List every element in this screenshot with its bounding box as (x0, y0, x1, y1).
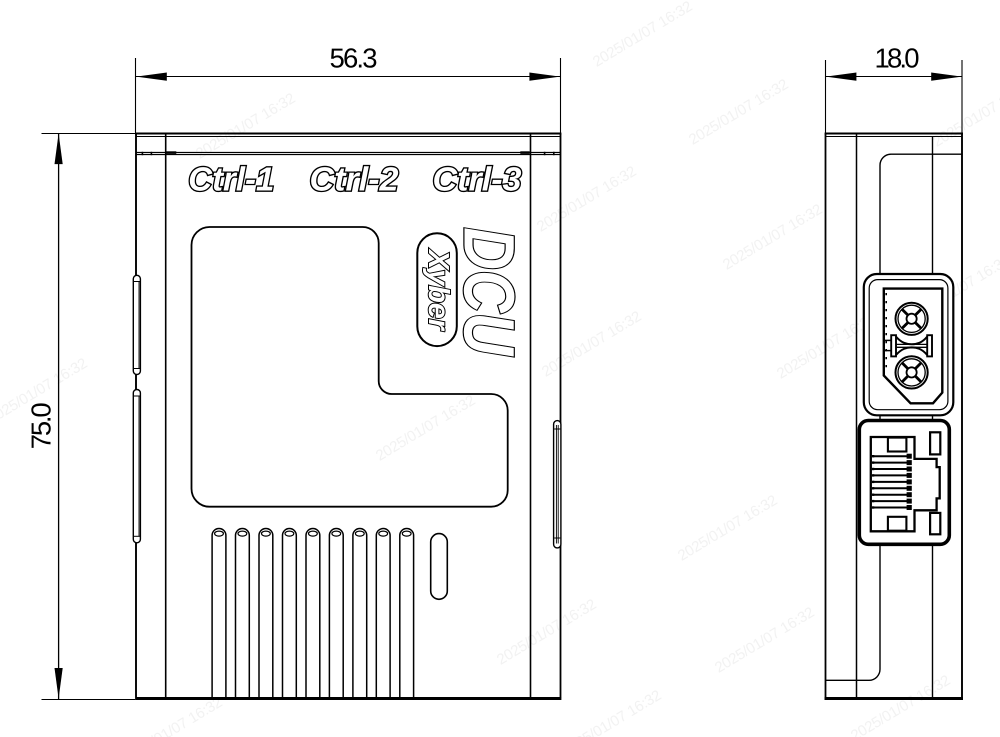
svg-text:Ctrl-3: Ctrl-3 (433, 161, 522, 198)
svg-text:56.3: 56.3 (330, 43, 378, 74)
svg-text:DCU: DCU (449, 227, 529, 357)
svg-text:Xyber: Xyber (422, 248, 454, 332)
svg-text:Ctrl-2: Ctrl-2 (310, 161, 399, 198)
svg-text:18.0: 18.0 (875, 43, 920, 74)
svg-text:Ctrl-1: Ctrl-1 (188, 161, 274, 198)
svg-text:75.0: 75.0 (25, 402, 56, 449)
